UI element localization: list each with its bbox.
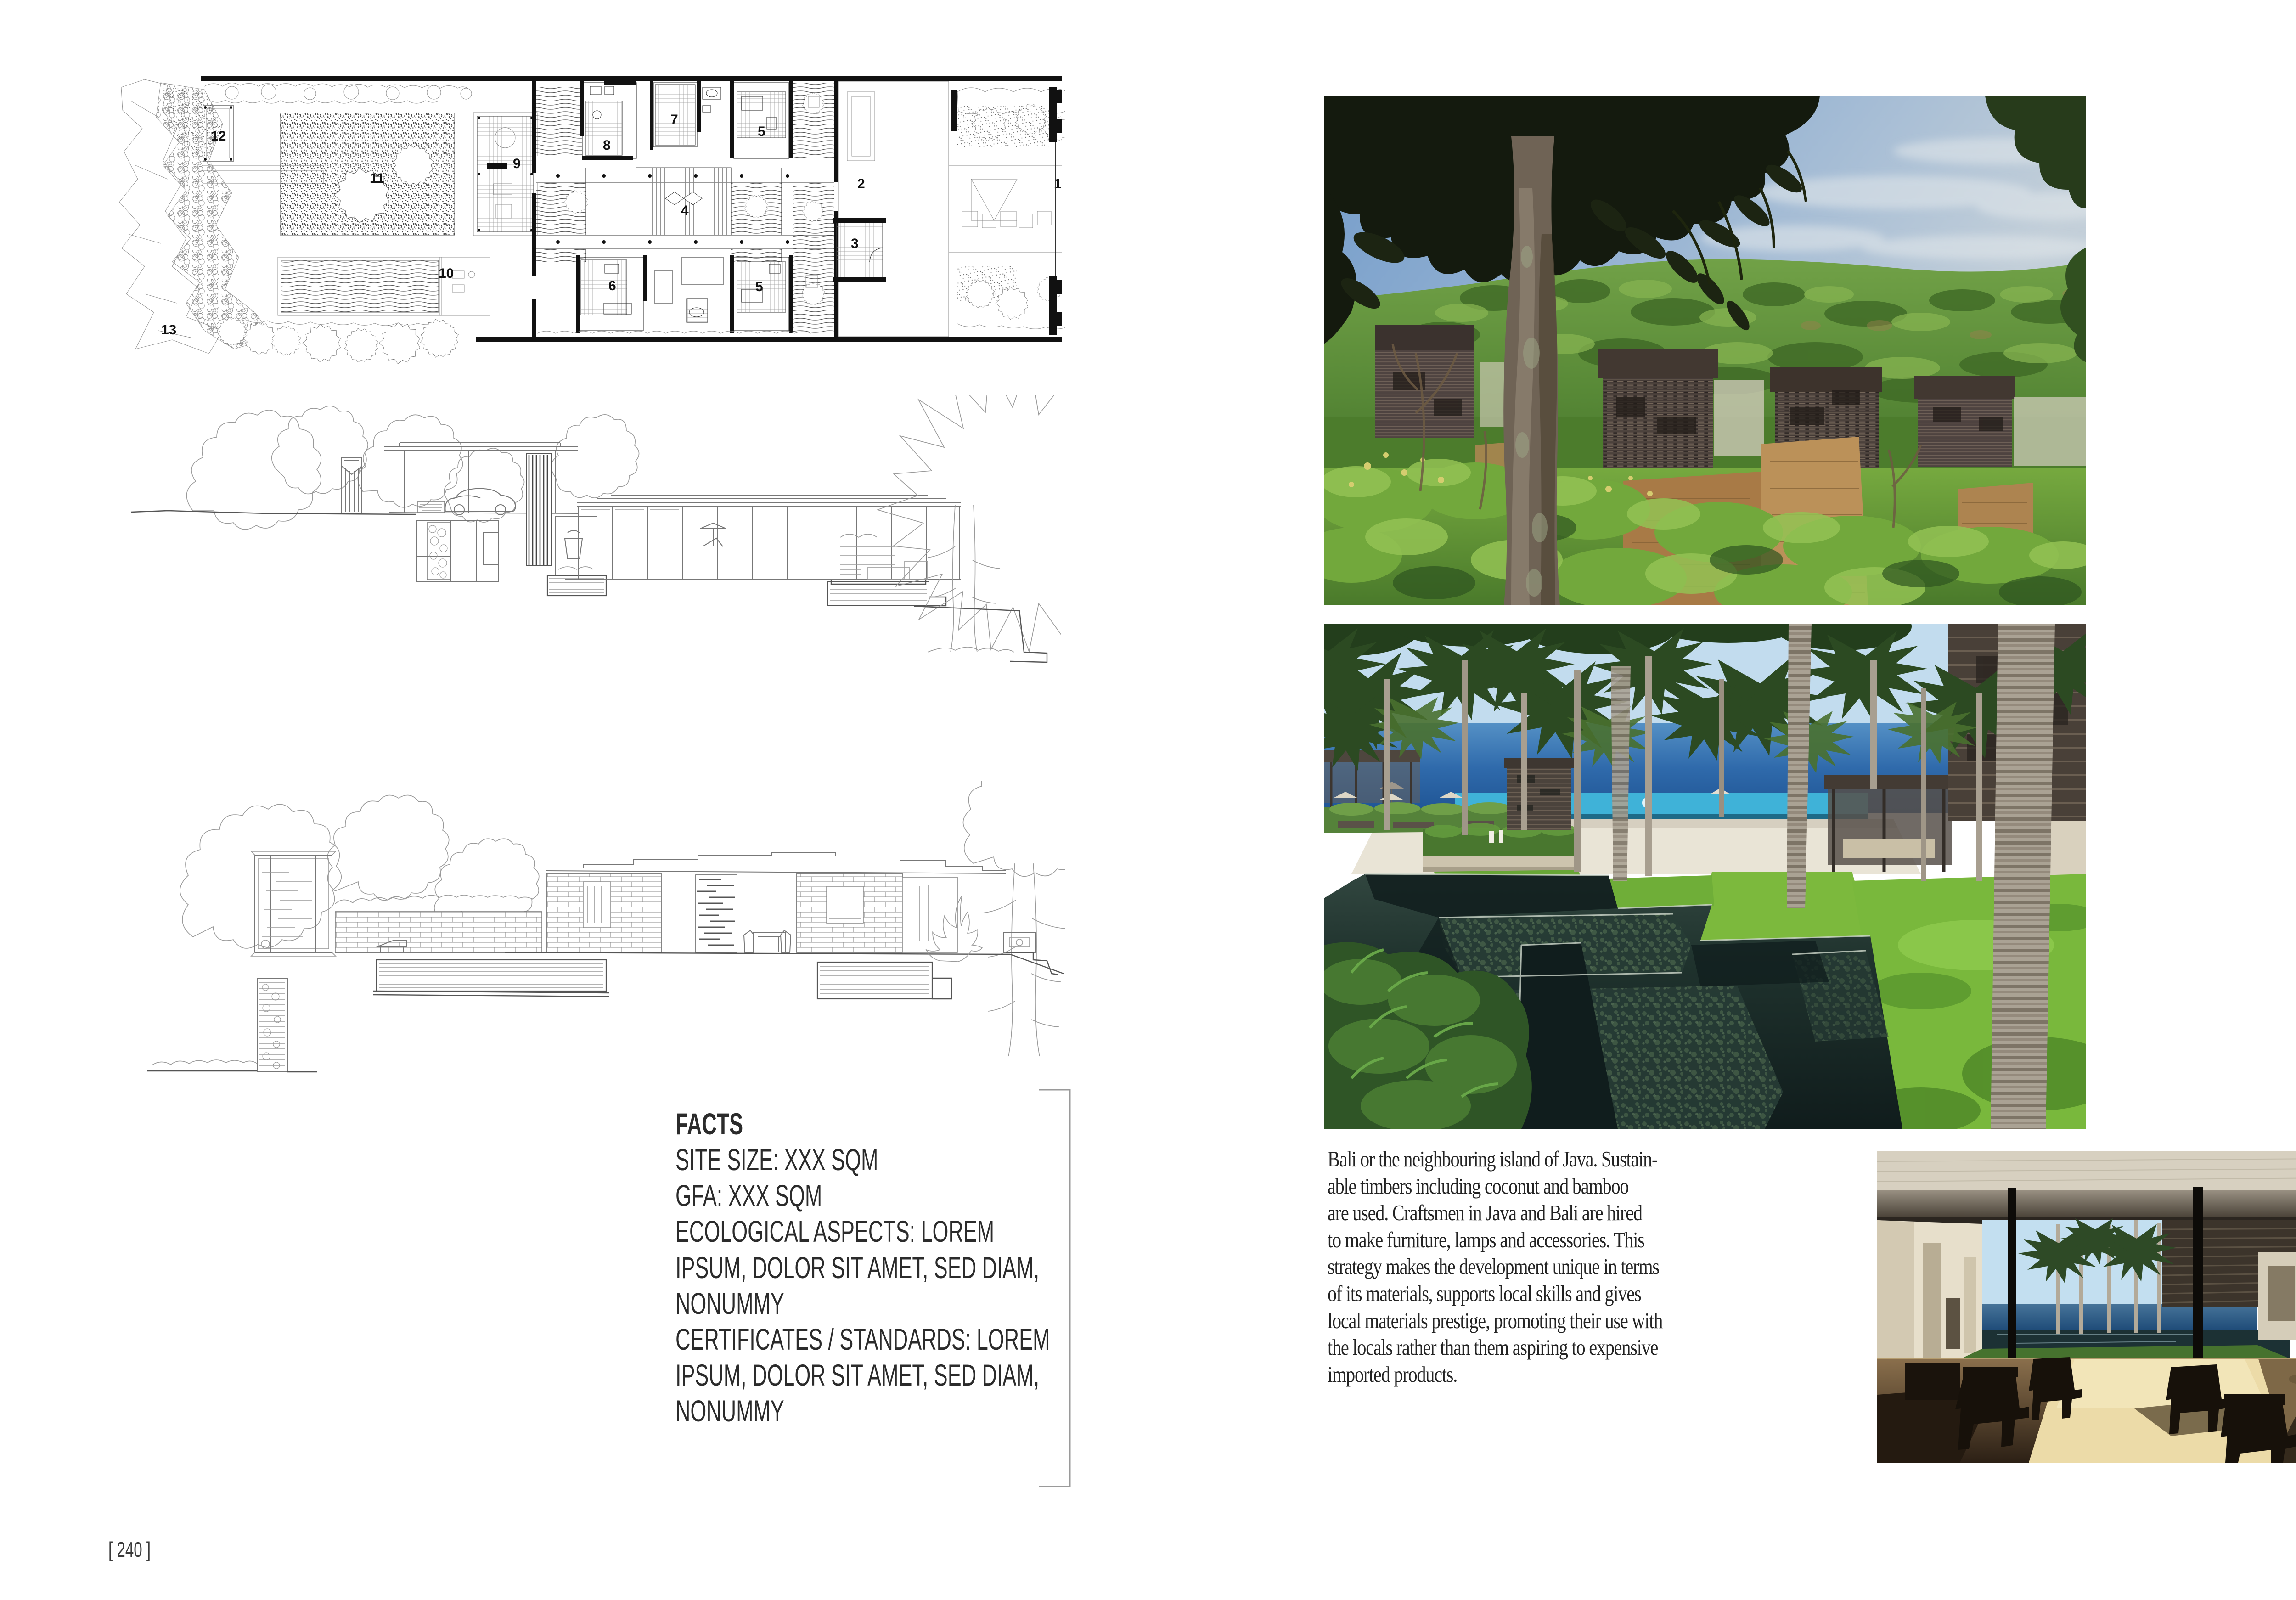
svg-text:3: 3 <box>851 236 859 251</box>
svg-text:2: 2 <box>857 176 865 192</box>
svg-text:6: 6 <box>608 278 616 293</box>
svg-text:9: 9 <box>513 156 521 171</box>
svg-text:13: 13 <box>161 322 176 338</box>
svg-text:10: 10 <box>439 266 454 281</box>
svg-text:12: 12 <box>211 129 226 144</box>
svg-text:5: 5 <box>755 279 763 294</box>
svg-text:8: 8 <box>603 138 611 153</box>
svg-text:11: 11 <box>370 171 384 186</box>
svg-text:4: 4 <box>681 203 689 218</box>
svg-text:5: 5 <box>758 124 765 139</box>
svg-text:7: 7 <box>670 112 678 127</box>
